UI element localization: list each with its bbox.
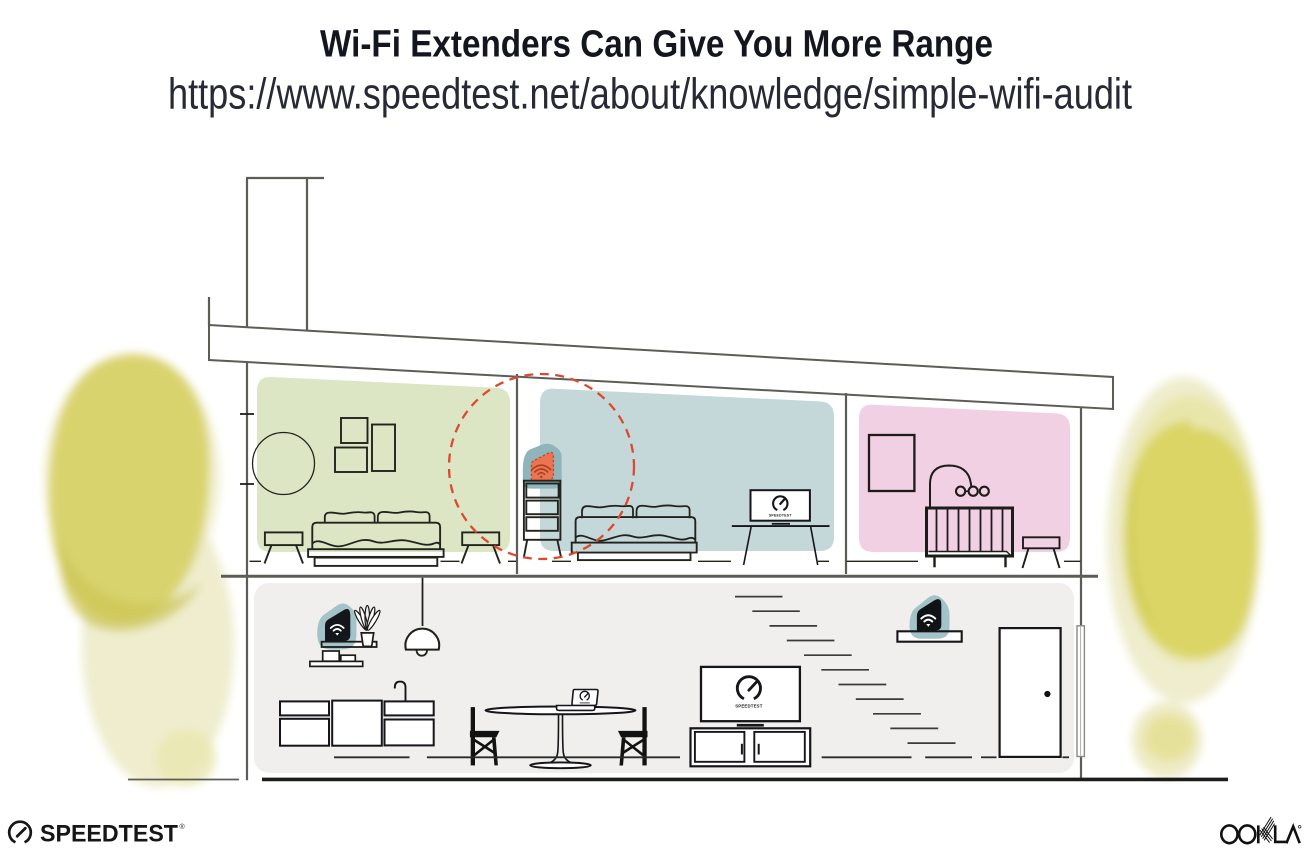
svg-text:®: ® — [180, 823, 186, 831]
svg-text:SPEEDTEST: SPEEDTEST — [40, 821, 178, 848]
svg-text:https://www.speedtest.net/abou: https://www.speedtest.net/about/knowledg… — [168, 70, 1132, 119]
svg-text:Wi-Fi Extenders Can Give You M: Wi-Fi Extenders Can Give You More Range — [320, 24, 993, 66]
svg-text:SPEEDTEST: SPEEDTEST — [769, 513, 792, 517]
svg-text:SPEEDTEST: SPEEDTEST — [735, 704, 763, 709]
